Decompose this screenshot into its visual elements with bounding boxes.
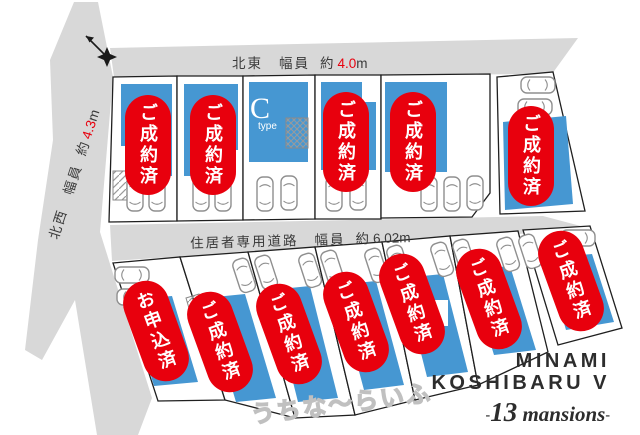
car-icon <box>521 77 555 93</box>
tagline-word: mansions <box>522 402 605 426</box>
road-direction: 北東 <box>232 56 263 71</box>
tagline-number: 13 <box>490 397 517 427</box>
status-badge-lot-1: ご成約済 <box>125 95 171 195</box>
road-width-value: 4.0 <box>338 56 357 71</box>
car-icon <box>281 176 297 210</box>
building-4-notch <box>362 82 376 102</box>
status-badge-lot-2: ご成約済 <box>190 95 236 195</box>
car-icon <box>467 176 483 210</box>
road-width-label: 幅員 <box>279 56 310 71</box>
road-label-northeast: 北東幅員約4.0m <box>232 52 368 72</box>
car-icon <box>257 177 273 211</box>
road-width-value: 6.02 <box>373 230 400 246</box>
lot-3-type-label: C type <box>250 94 277 132</box>
status-badge-lot-5: ご成約済 <box>390 92 436 192</box>
hatch-area-lot3 <box>286 118 308 148</box>
type-word: type <box>258 122 277 132</box>
project-title-line2: KOSHIBARU V <box>431 373 610 395</box>
project-title: MINAMI KOSHIBARU V -13 mansions- <box>431 351 610 428</box>
project-title-line1: MINAMI <box>431 351 610 373</box>
car-icon <box>444 177 460 211</box>
road-name: 住居者専用道路 <box>190 233 299 251</box>
road-width-label: 幅員 <box>314 232 345 248</box>
status-badge-lot-4: ご成約済 <box>323 92 369 192</box>
project-tagline: -13 mansions- <box>431 397 610 428</box>
site-plan: 北東幅員約4.0m 北西幅員約4.3m 住居者専用道路幅員約6.02m C ty… <box>0 0 640 435</box>
status-badge-lot-6: ご成約済 <box>508 106 554 206</box>
